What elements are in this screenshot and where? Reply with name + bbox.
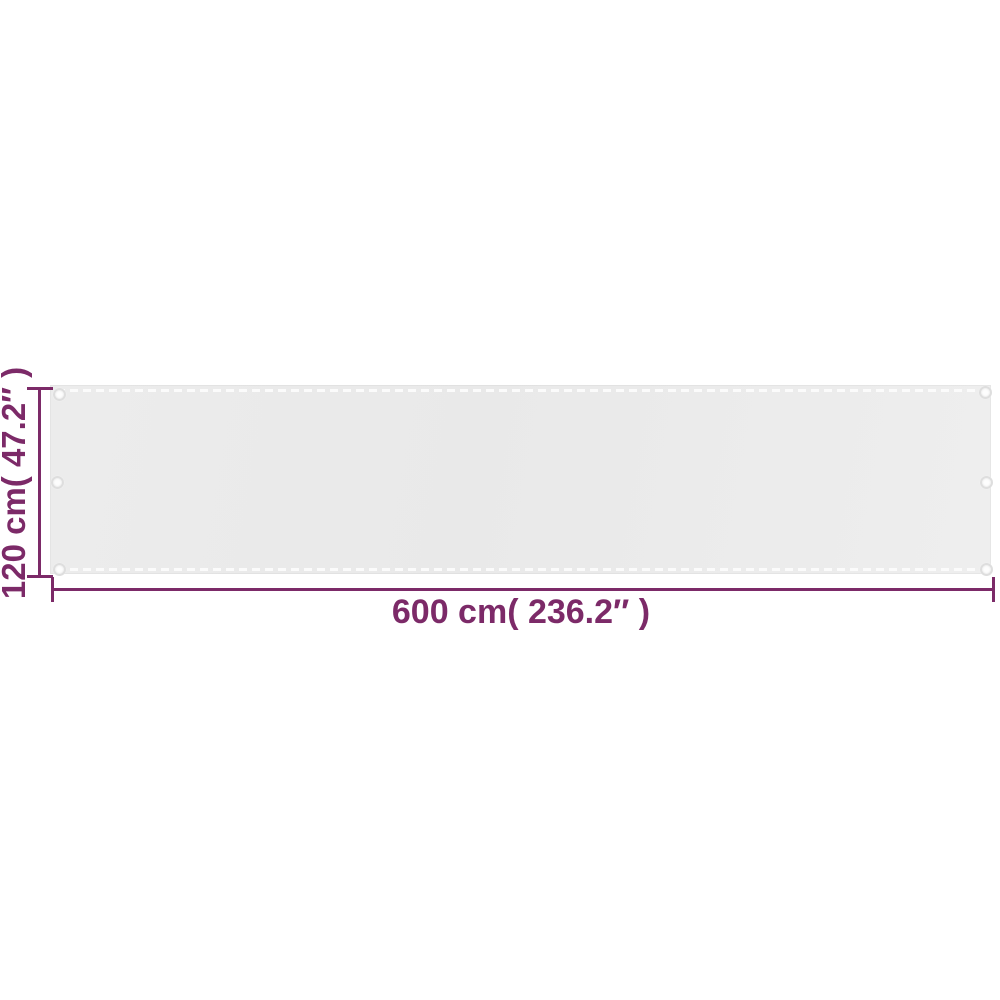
height-dimension-label: 120 cm( 47.2″ ): [0, 333, 33, 633]
grommet-middle-left: [51, 476, 64, 489]
width-dimension-line: [52, 588, 995, 591]
width-dimension-cap-right: [992, 577, 995, 602]
width-dimension-label: 600 cm( 236.2″ ): [321, 592, 721, 632]
stitch-line-top: [57, 389, 984, 392]
grommet-bottom-right: [980, 563, 993, 576]
product-panel: [50, 385, 991, 574]
stitch-line-bottom: [57, 568, 984, 571]
grommet-top-right: [979, 386, 992, 399]
grommet-top-left: [53, 388, 66, 401]
width-dimension-cap-left: [51, 577, 54, 602]
height-dimension-line: [38, 388, 41, 577]
grommet-middle-right: [980, 476, 993, 489]
grommet-bottom-left: [53, 563, 66, 576]
product-dimension-diagram: 120 cm( 47.2″ ) 600 cm( 236.2″ ): [0, 0, 1000, 1000]
